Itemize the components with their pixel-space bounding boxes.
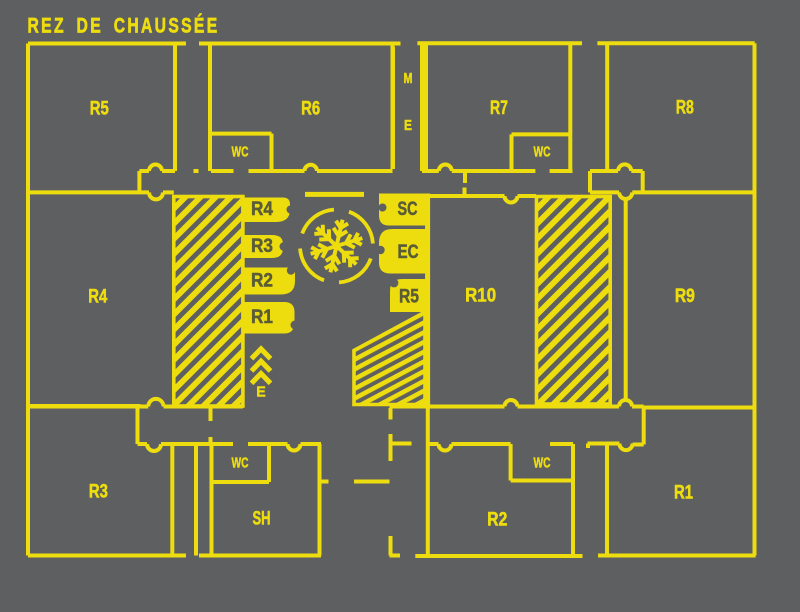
svg-text:R9: R9	[675, 286, 695, 307]
svg-text:WC: WC	[232, 456, 249, 472]
svg-text:E: E	[256, 385, 266, 401]
svg-text:R3: R3	[89, 482, 108, 503]
svg-text:R7: R7	[490, 98, 508, 119]
svg-text:WC: WC	[534, 144, 551, 160]
svg-text:R2: R2	[251, 271, 273, 292]
svg-text:WC: WC	[232, 144, 249, 160]
svg-text:R10: R10	[465, 286, 496, 307]
svg-text:R5: R5	[399, 287, 419, 308]
svg-text:R6: R6	[301, 98, 320, 119]
svg-text:EC: EC	[398, 242, 419, 263]
svg-text:R5: R5	[90, 99, 109, 120]
svg-text:R1: R1	[674, 483, 693, 504]
svg-text:R4: R4	[251, 199, 273, 220]
svg-text:R8: R8	[676, 98, 694, 119]
svg-text:SC: SC	[398, 199, 418, 220]
svg-text:R4: R4	[88, 287, 107, 308]
svg-text:M: M	[404, 71, 413, 87]
svg-text:R2: R2	[487, 510, 507, 531]
svg-text:REZ DE CHAUSSÉE: REZ DE CHAUSSÉE	[28, 13, 220, 38]
svg-text:SH: SH	[253, 509, 271, 530]
svg-text:WC: WC	[534, 456, 551, 472]
svg-text:R1: R1	[251, 307, 273, 328]
svg-text:R3: R3	[251, 236, 273, 257]
svg-text:E: E	[404, 118, 412, 134]
